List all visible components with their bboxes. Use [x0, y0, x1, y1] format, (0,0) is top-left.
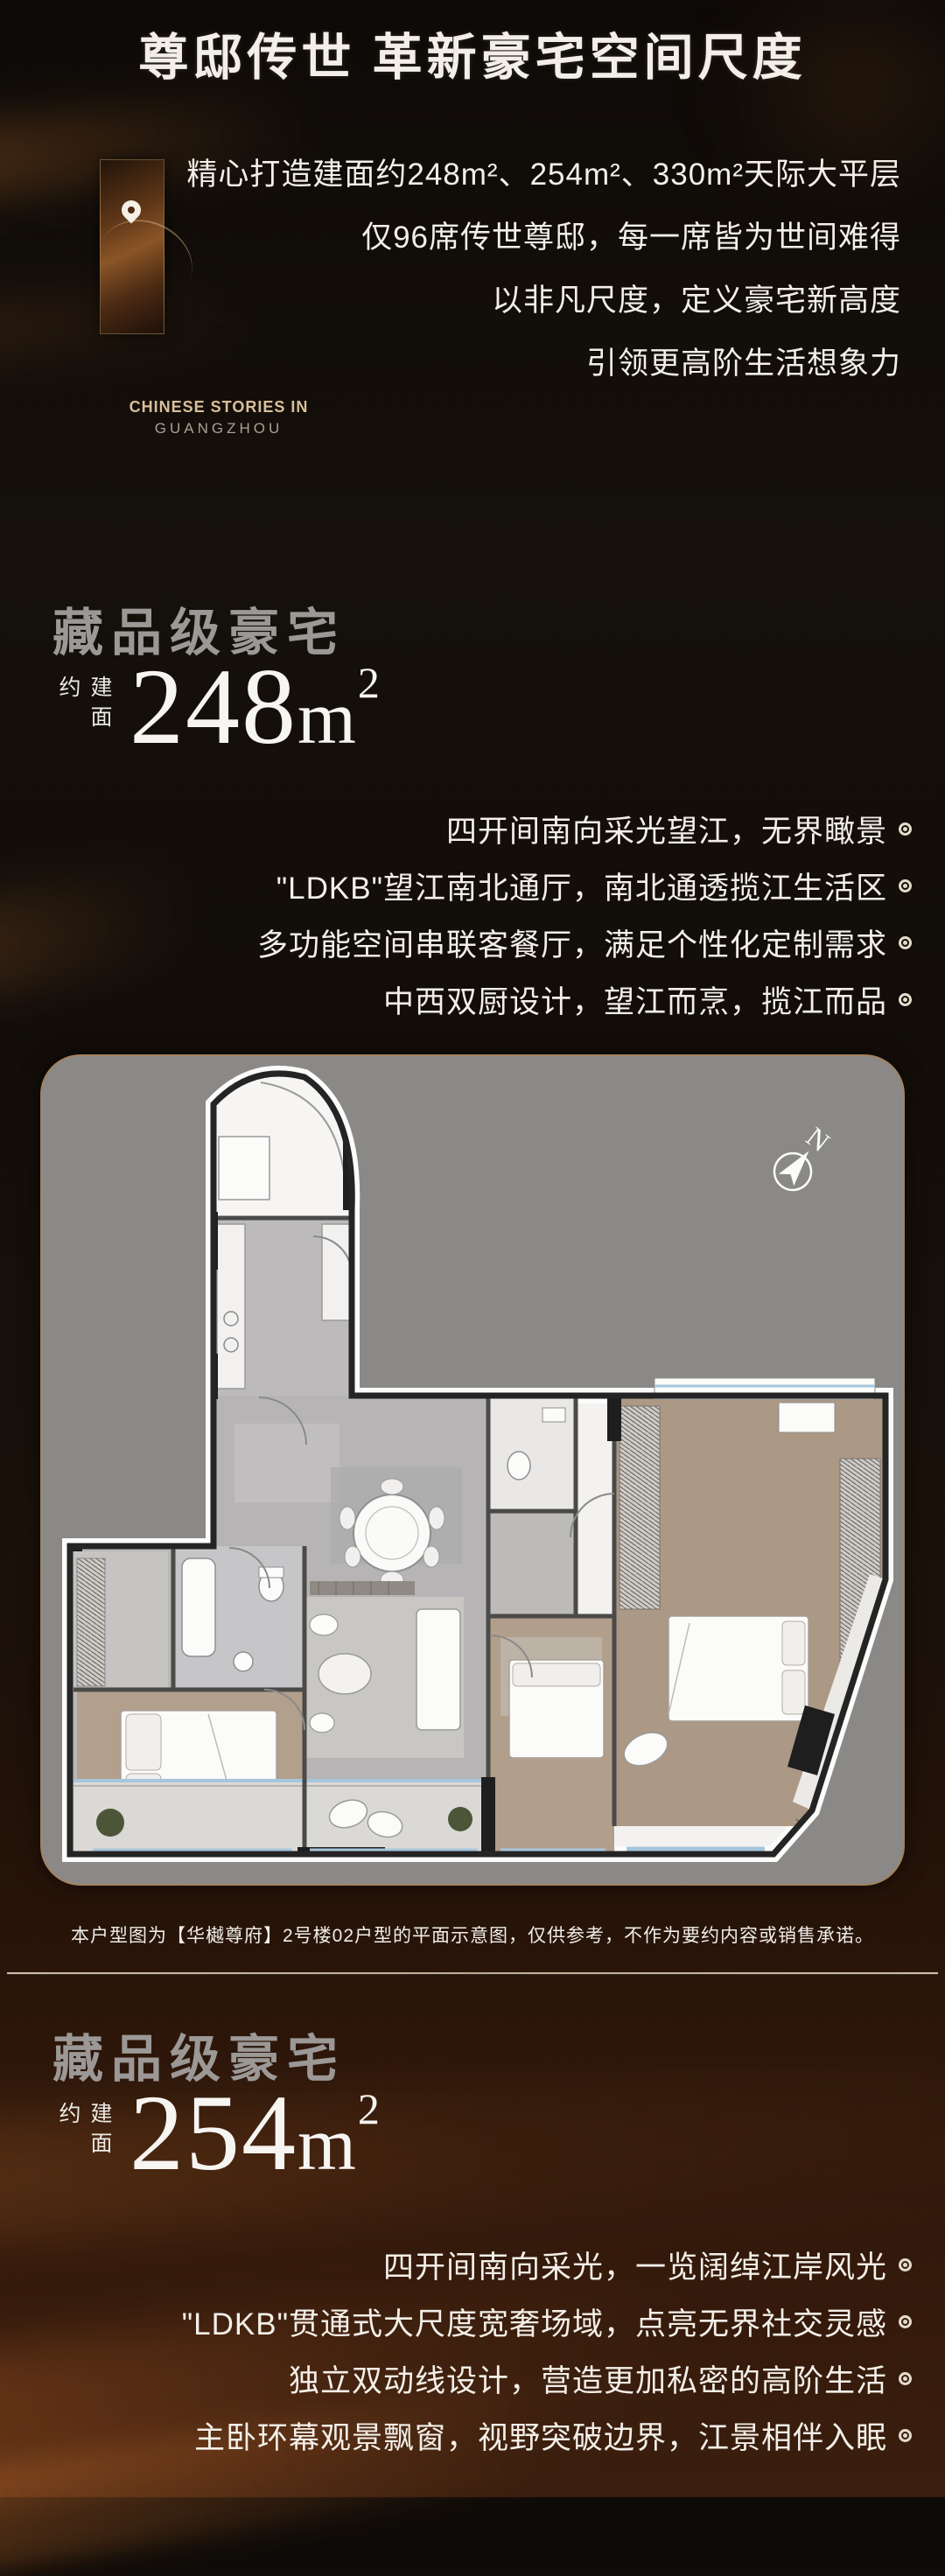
area-number-digits: 248 — [129, 647, 297, 766]
intro-copy: 精心打造建面约248m²、254m²、330m²天际大平层 仅96席传世尊邸，每… — [186, 143, 901, 395]
ring-bullet-icon — [899, 879, 912, 892]
area-unit: m — [297, 2102, 356, 2186]
area-248-block: 建面约 248m2 — [52, 663, 380, 772]
bay-window-band — [654, 1378, 875, 1394]
floorplan-caption: 本户型图为【华樾尊府】2号楼02户型的平面示意图，仅供参考，不作为要约内容或销售… — [0, 1921, 945, 1948]
ring-bullet-icon — [899, 936, 912, 949]
brand-logo-banner: CHINESE STORIES IN GUANGZHOU — [100, 159, 164, 334]
page-title: 尊邸传世 革新豪宅空间尺度 — [0, 17, 945, 89]
compass-n-label: N — [801, 1121, 836, 1158]
intro-line: 精心打造建面约248m²、254m²、330m²天际大平层 — [186, 143, 901, 206]
area-unit: m — [297, 675, 356, 759]
north-compass-icon: N — [767, 1116, 843, 1198]
bullet-text: 中西双厨设计，望江而烹，揽江而品 — [383, 977, 887, 1022]
area-254-number: 254m2 — [129, 2089, 380, 2198]
logo-text-line2: GUANGZHOU — [48, 420, 389, 437]
bullet-text: "LDKB"望江南北通厅，南北通透揽江生活区 — [276, 864, 887, 908]
intro-line: 以非凡尺度，定义豪宅新高度 — [186, 269, 901, 332]
bullet-text: 四开间南向采光望江，无界瞰景 — [446, 807, 887, 851]
bullet-text: 四开间南向采光，一览阔绰江岸风光 — [383, 2243, 887, 2287]
section-254-bullets: 四开间南向采光，一览阔绰江岸风光 "LDKB"贯通式大尺度宽奢场域，点亮无界社交… — [182, 2236, 912, 2464]
bullet-row: 四开间南向采光，一览阔绰江岸风光 — [182, 2236, 912, 2293]
bullet-row: "LDKB"望江南北通厅，南北通透揽江生活区 — [257, 857, 912, 914]
bullet-text: 独立双动线设计，营造更加私密的高阶生活 — [289, 2356, 887, 2401]
area-number-digits: 254 — [129, 2073, 297, 2193]
ring-bullet-icon — [899, 2372, 912, 2385]
ring-bullet-icon — [899, 993, 912, 1006]
light-streak — [0, 864, 191, 998]
floorplan-image: N — [42, 1056, 903, 1884]
bullet-text: "LDKB"贯通式大尺度宽奢场域，点亮无界社交灵感 — [182, 2299, 887, 2344]
bullet-row: 多功能空间串联客餐厅，满足个性化定制需求 — [257, 914, 912, 971]
ring-bullet-icon — [899, 2429, 912, 2442]
section-divider — [7, 1972, 938, 1975]
area-superscript: 2 — [358, 2084, 381, 2133]
ring-bullet-icon — [899, 2258, 912, 2271]
bullet-row: 主卧环幕观景飘窗，视野突破边界，江景相伴入眠 — [182, 2407, 912, 2464]
area-label-vertical: 建面约 — [52, 2089, 115, 2186]
ring-bullet-icon — [899, 822, 912, 836]
area-254-block: 建面约 254m2 — [52, 2089, 380, 2198]
logo-text-line1: CHINESE STORIES IN — [48, 398, 389, 416]
bullet-text: 多功能空间串联客餐厅，满足个性化定制需求 — [257, 920, 887, 965]
floorplan-card: N — [40, 1054, 905, 1886]
intro-line: 仅96席传世尊邸，每一席皆为世间难得 — [186, 206, 901, 269]
sofa-area — [304, 1581, 464, 1758]
area-superscript: 2 — [358, 658, 381, 707]
promo-poster: { "header": { "title": "尊邸传世 革新豪宅空间尺度" }… — [0, 0, 945, 2497]
bullet-row: 中西双厨设计，望江而烹，揽江而品 — [257, 971, 912, 1028]
section-248-bullets: 四开间南向采光望江，无界瞰景 "LDKB"望江南北通厅，南北通透揽江生活区 多功… — [257, 801, 912, 1028]
area-label-vertical: 建面约 — [52, 663, 115, 759]
bullet-row: 四开间南向采光望江，无界瞰景 — [257, 801, 912, 857]
area-248-number: 248m2 — [129, 663, 380, 772]
ring-bullet-icon — [899, 2315, 912, 2328]
bullet-row: "LDKB"贯通式大尺度宽奢场域，点亮无界社交灵感 — [182, 2293, 912, 2350]
bullet-text: 主卧环幕观景飘窗，视野突破边界，江景相伴入眠 — [194, 2413, 887, 2458]
intro-line: 引领更高阶生活想象力 — [186, 332, 901, 395]
bullet-row: 独立双动线设计，营造更加私密的高阶生活 — [182, 2350, 912, 2407]
